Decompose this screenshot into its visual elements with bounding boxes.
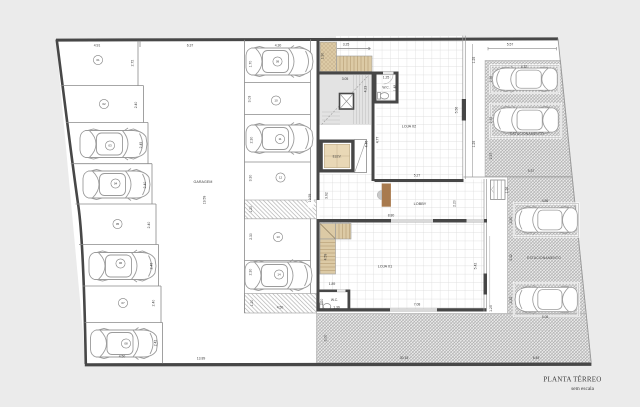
svg-text:2.40: 2.40 — [152, 300, 156, 307]
svg-text:04: 04 — [114, 182, 118, 186]
svg-text:4.50: 4.50 — [277, 306, 284, 310]
svg-text:4.32: 4.32 — [521, 65, 528, 69]
svg-text:19.59: 19.59 — [203, 196, 207, 205]
svg-text:7.08: 7.08 — [414, 303, 421, 307]
svg-text:3.00: 3.00 — [324, 335, 328, 342]
svg-text:2.30: 2.30 — [249, 269, 253, 276]
svg-text:4.46: 4.46 — [365, 141, 369, 148]
svg-text:4.30: 4.30 — [275, 43, 282, 47]
svg-text:2.30: 2.30 — [250, 137, 254, 144]
svg-text:2.40: 2.40 — [143, 182, 147, 189]
svg-text:12: 12 — [279, 176, 283, 180]
svg-text:1.25: 1.25 — [472, 141, 476, 148]
svg-text:14: 14 — [277, 273, 281, 277]
svg-text:13: 13 — [276, 235, 280, 239]
svg-text:1.89: 1.89 — [329, 282, 336, 286]
svg-text:1.25: 1.25 — [472, 57, 476, 64]
svg-text:11: 11 — [278, 137, 281, 141]
svg-text:1.48: 1.48 — [393, 85, 397, 92]
svg-text:1.25: 1.25 — [489, 305, 493, 312]
svg-text:5.42: 5.42 — [474, 263, 478, 270]
svg-text:1.70: 1.70 — [249, 61, 253, 68]
svg-text:3.62: 3.62 — [325, 192, 329, 199]
svg-text:8.80: 8.80 — [388, 213, 395, 217]
svg-text:06: 06 — [119, 261, 123, 265]
svg-text:3.03: 3.03 — [248, 96, 252, 103]
svg-text:6.37: 6.37 — [187, 43, 194, 47]
svg-text:PLANTA TÉRREO: PLANTA TÉRREO — [543, 376, 601, 384]
svg-text:2.45: 2.45 — [149, 263, 153, 270]
svg-text:1.20: 1.20 — [250, 300, 254, 307]
svg-text:4.50: 4.50 — [119, 355, 126, 359]
svg-text:4.91: 4.91 — [94, 43, 101, 47]
svg-text:2.36: 2.36 — [489, 76, 493, 83]
svg-text:2.45: 2.45 — [139, 142, 143, 149]
svg-text:3.25: 3.25 — [343, 43, 350, 47]
svg-text:2.40: 2.40 — [134, 102, 138, 109]
svg-text:2.37: 2.37 — [489, 153, 493, 160]
svg-text:1.26: 1.26 — [505, 187, 509, 194]
svg-text:5.57: 5.57 — [507, 43, 514, 47]
svg-text:09: 09 — [276, 60, 280, 64]
svg-text:GARAGEM: GARAGEM — [193, 180, 212, 184]
svg-text:2.42: 2.42 — [153, 340, 157, 347]
svg-text:1.90: 1.90 — [321, 53, 325, 60]
svg-text:19.59: 19.59 — [308, 194, 312, 203]
svg-text:5.37: 5.37 — [528, 169, 535, 173]
svg-text:ESTACIONAMENTO: ESTACIONAMENTO — [527, 256, 561, 260]
svg-text:2.20: 2.20 — [453, 200, 457, 207]
svg-text:30.15: 30.15 — [400, 356, 409, 360]
svg-text:1.39: 1.39 — [333, 306, 340, 310]
svg-text:3.30: 3.30 — [249, 175, 253, 182]
svg-text:2.32: 2.32 — [489, 117, 493, 124]
svg-text:3.05: 3.05 — [342, 77, 349, 81]
svg-text:4.59: 4.59 — [324, 254, 328, 261]
svg-text:1.20: 1.20 — [320, 299, 324, 306]
svg-text:2.50: 2.50 — [509, 217, 513, 224]
svg-text:08: 08 — [124, 342, 128, 346]
svg-text:1.25: 1.25 — [383, 76, 390, 80]
svg-text:5.08: 5.08 — [542, 315, 549, 319]
svg-text:LOJA 01: LOJA 01 — [378, 265, 393, 269]
svg-text:1.20: 1.20 — [249, 206, 253, 213]
svg-text:10: 10 — [274, 99, 278, 103]
svg-text:sem escala: sem escala — [571, 386, 594, 392]
svg-text:2.40: 2.40 — [147, 222, 151, 229]
svg-text:4.56: 4.56 — [542, 199, 549, 203]
svg-text:03: 03 — [108, 144, 112, 148]
svg-text:W.C.: W.C. — [382, 86, 389, 90]
svg-text:LOJA 02: LOJA 02 — [402, 125, 417, 129]
svg-text:2.30: 2.30 — [249, 233, 253, 240]
svg-text:07: 07 — [121, 301, 125, 305]
svg-text:4.23: 4.23 — [364, 86, 368, 93]
svg-text:4.77: 4.77 — [376, 137, 380, 144]
svg-text:5.56: 5.56 — [455, 107, 459, 114]
svg-text:ESTACIONAMENTO: ESTACIONAMENTO — [510, 132, 544, 136]
svg-text:2.32: 2.32 — [509, 297, 513, 304]
svg-text:5.27: 5.27 — [414, 173, 421, 177]
svg-text:05: 05 — [116, 222, 120, 226]
svg-text:W.C.: W.C. — [331, 298, 338, 302]
svg-text:2.72: 2.72 — [130, 60, 134, 67]
svg-text:LOBBY: LOBBY — [414, 202, 427, 206]
svg-text:ELEV.: ELEV. — [333, 154, 342, 158]
svg-text:02: 02 — [102, 102, 106, 106]
svg-text:13.89: 13.89 — [197, 357, 206, 361]
svg-text:3.32: 3.32 — [509, 254, 513, 261]
svg-text:01: 01 — [96, 58, 100, 62]
svg-text:6.49: 6.49 — [533, 356, 540, 360]
